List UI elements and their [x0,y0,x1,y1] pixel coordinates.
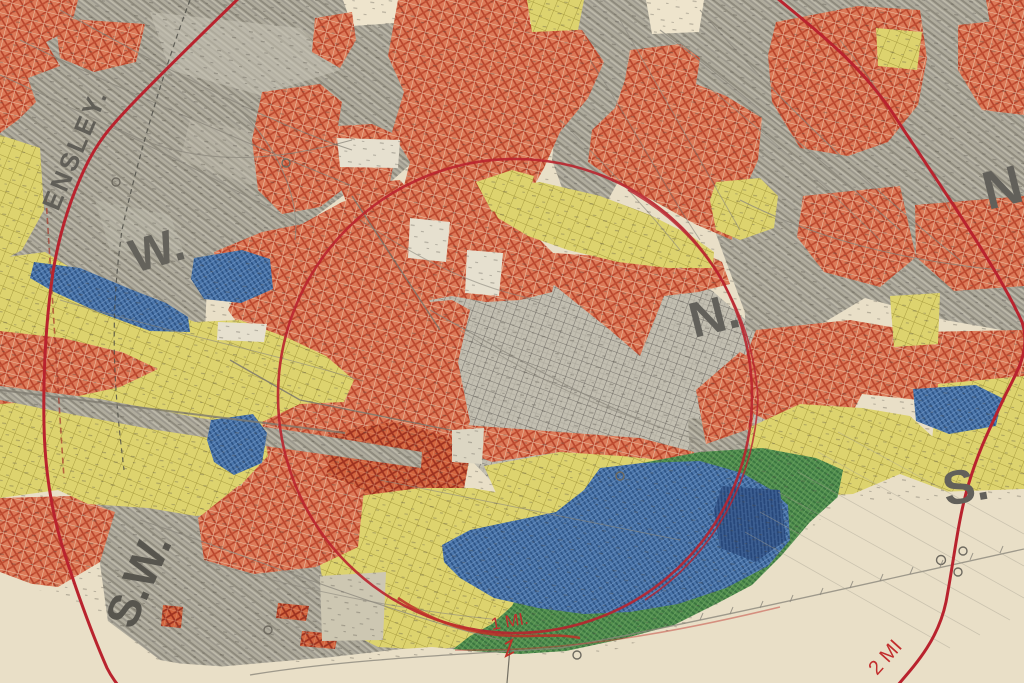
svg-text:S.: S. [939,457,993,517]
